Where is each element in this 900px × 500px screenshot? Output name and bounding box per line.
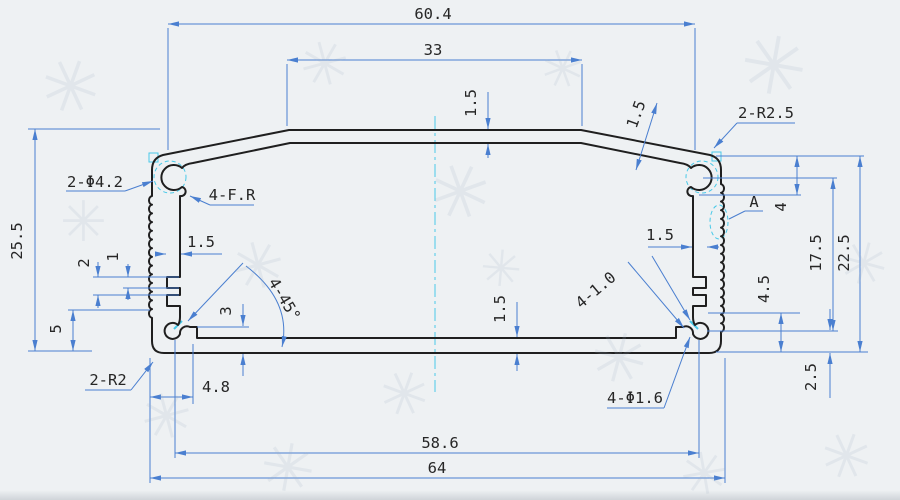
label-outer-height: 22.5 <box>835 234 853 271</box>
drawing-sheet: ✳✳✳✳✳✳✳✳✳✳✳✳✳✳✳ <box>0 0 900 500</box>
label-total-height: 25.5 <box>8 222 26 259</box>
label-detail-a: A <box>749 193 759 211</box>
leader-screw-hole <box>125 181 153 191</box>
dimension-lines <box>35 24 860 478</box>
label-lower-right: 4.5 <box>755 275 773 303</box>
extension-lines <box>28 28 868 483</box>
label-inner-height: 17.5 <box>807 234 825 271</box>
label-corner-radius-top: 2-R2.5 <box>738 104 794 122</box>
leader-pin-hole <box>664 337 690 408</box>
label-hole-span: 58.6 <box>421 434 458 452</box>
label-pin-hole: 4-Φ1.6 <box>607 389 663 407</box>
label-notch-pitch: 2 <box>75 258 93 267</box>
label-slot-width: 4-1.0 <box>572 268 619 312</box>
label-slope-wall: 1.5 <box>623 98 649 130</box>
label-foot: 4.8 <box>202 378 230 396</box>
dim-slot-width-b <box>652 256 690 320</box>
profile-inner-contour <box>161 143 711 339</box>
detail-a-ellipse <box>710 205 728 239</box>
label-ledge: 3 <box>217 306 235 315</box>
leader-corner-radius-top <box>714 123 737 148</box>
label-notch-width: 1 <box>104 252 122 261</box>
label-full-radius: 4-F.R <box>209 186 256 204</box>
label-floor-wall: 1.5 <box>491 295 509 323</box>
label-plateau-width: 33 <box>424 41 443 59</box>
label-chamfer: 4-45° <box>265 275 304 324</box>
technical-drawing: 60.4 33 1.5 1.5 2-R2.5 2-Φ4.2 4-F.R A 4 … <box>0 0 900 500</box>
label-step-right: 4 <box>772 202 790 211</box>
dimension-labels: 60.4 33 1.5 1.5 2-R2.5 2-Φ4.2 4-F.R A 4 … <box>8 5 853 477</box>
label-corner-radius-bottom: 2-R2 <box>89 371 126 389</box>
label-boss-zone: 5 <box>47 324 65 333</box>
label-wall-left: 1.5 <box>187 233 215 251</box>
label-screw-hole: 2-Φ4.2 <box>67 173 123 191</box>
label-hole-offset: 2.5 <box>802 363 820 391</box>
label-plateau-wall: 1.5 <box>462 89 480 117</box>
label-total-width: 64 <box>428 459 447 477</box>
leader-detail-a <box>729 211 745 219</box>
leader-full-radius <box>190 196 210 205</box>
label-top-width: 60.4 <box>414 5 451 23</box>
centerline-group <box>149 116 728 392</box>
label-wall-right: 1.5 <box>646 226 674 244</box>
